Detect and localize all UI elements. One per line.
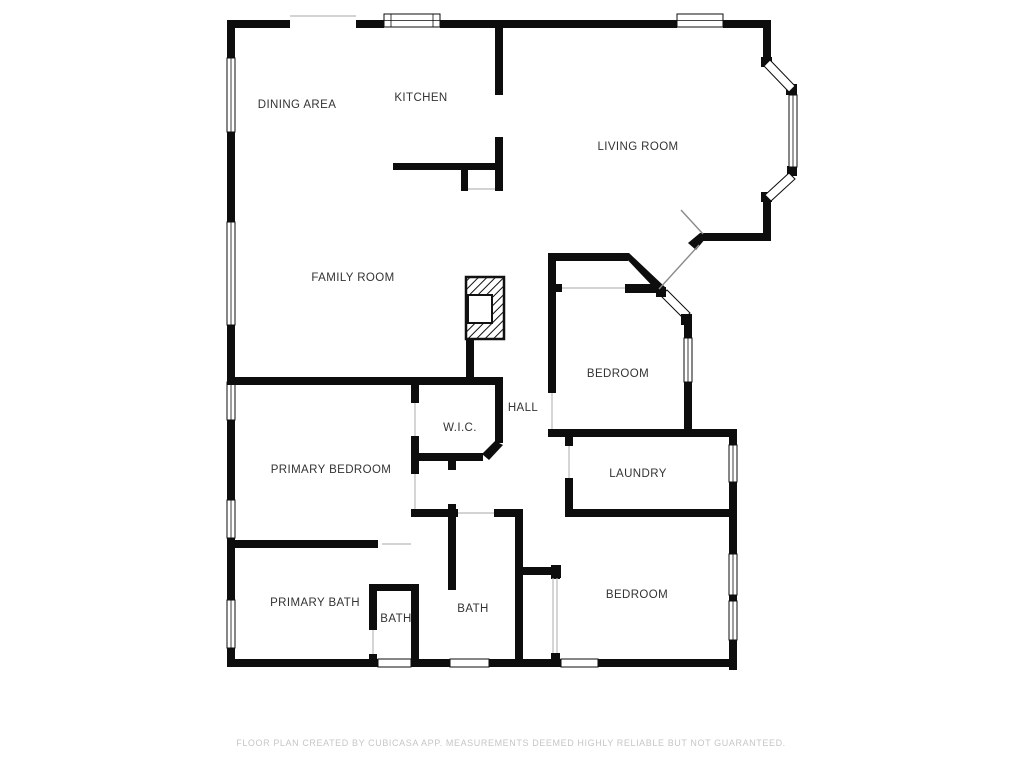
floor-plan-page: DINING AREA KITCHEN LIVING ROOM FAMILY R… xyxy=(0,0,1024,768)
room-label-family-room: FAMILY ROOM xyxy=(311,272,394,284)
room-label-laundry: LAUNDRY xyxy=(609,468,667,480)
fireplace xyxy=(466,277,504,339)
room-label-kitchen: KITCHEN xyxy=(394,92,447,104)
windows xyxy=(227,14,797,667)
room-label-primary-bedroom: PRIMARY BEDROOM xyxy=(271,464,392,476)
room-label-dining-area: DINING AREA xyxy=(258,99,337,111)
room-label-bedroom-middle: BEDROOM xyxy=(587,368,649,380)
room-label-bedroom-bottom: BEDROOM xyxy=(606,589,668,601)
room-label-wic: W.I.C. xyxy=(443,422,477,434)
footer-disclaimer: FLOOR PLAN CREATED BY CUBICASA APP. MEAS… xyxy=(236,738,786,748)
room-label-bath-middle: BATH xyxy=(457,603,488,615)
room-label-primary-bath: PRIMARY BATH xyxy=(270,597,360,609)
exterior-walls xyxy=(227,20,797,670)
interior-walls xyxy=(227,20,737,667)
room-label-hall: HALL xyxy=(508,402,538,414)
room-label-living-room: LIVING ROOM xyxy=(597,141,678,153)
room-label-bath-small: BATH xyxy=(380,613,411,625)
floor-plan-drawing xyxy=(0,0,1024,768)
